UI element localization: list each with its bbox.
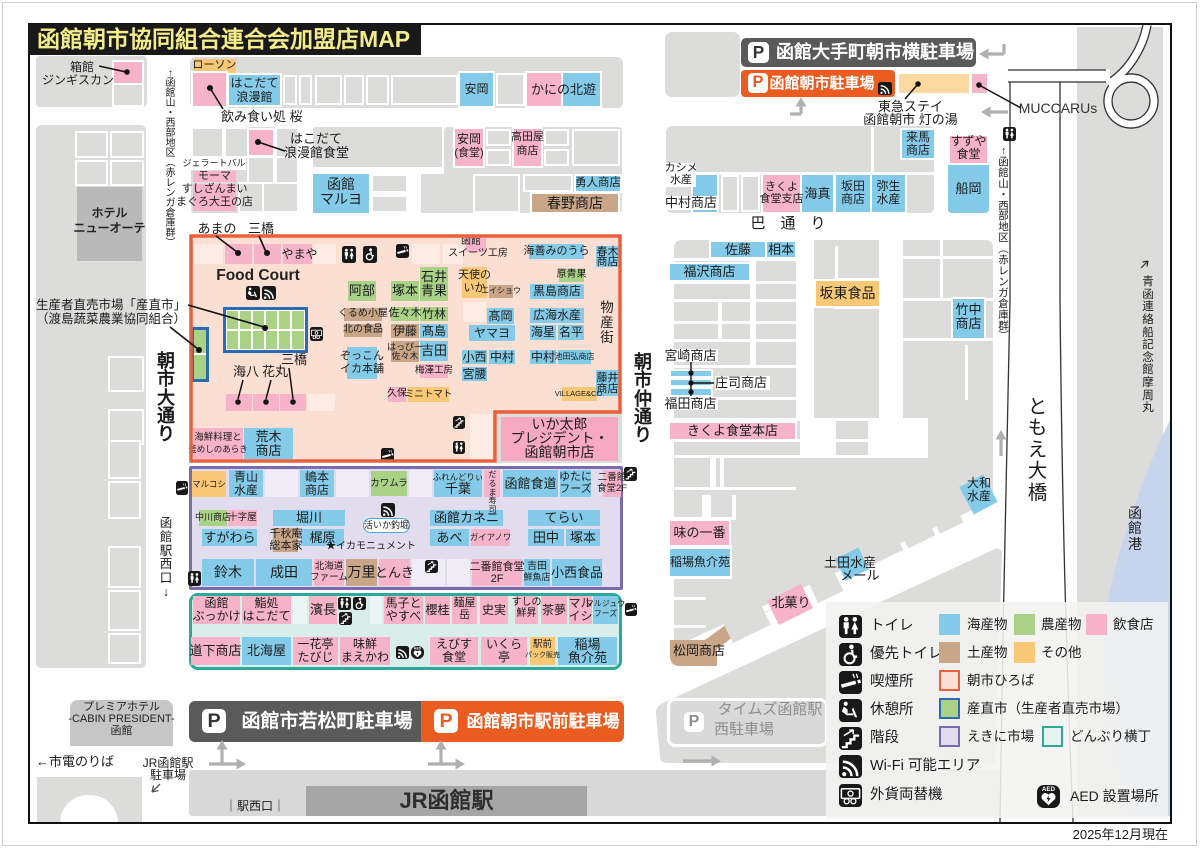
svg-text:AED: AED <box>414 647 422 651</box>
svg-text:AED: AED <box>1042 786 1056 793</box>
